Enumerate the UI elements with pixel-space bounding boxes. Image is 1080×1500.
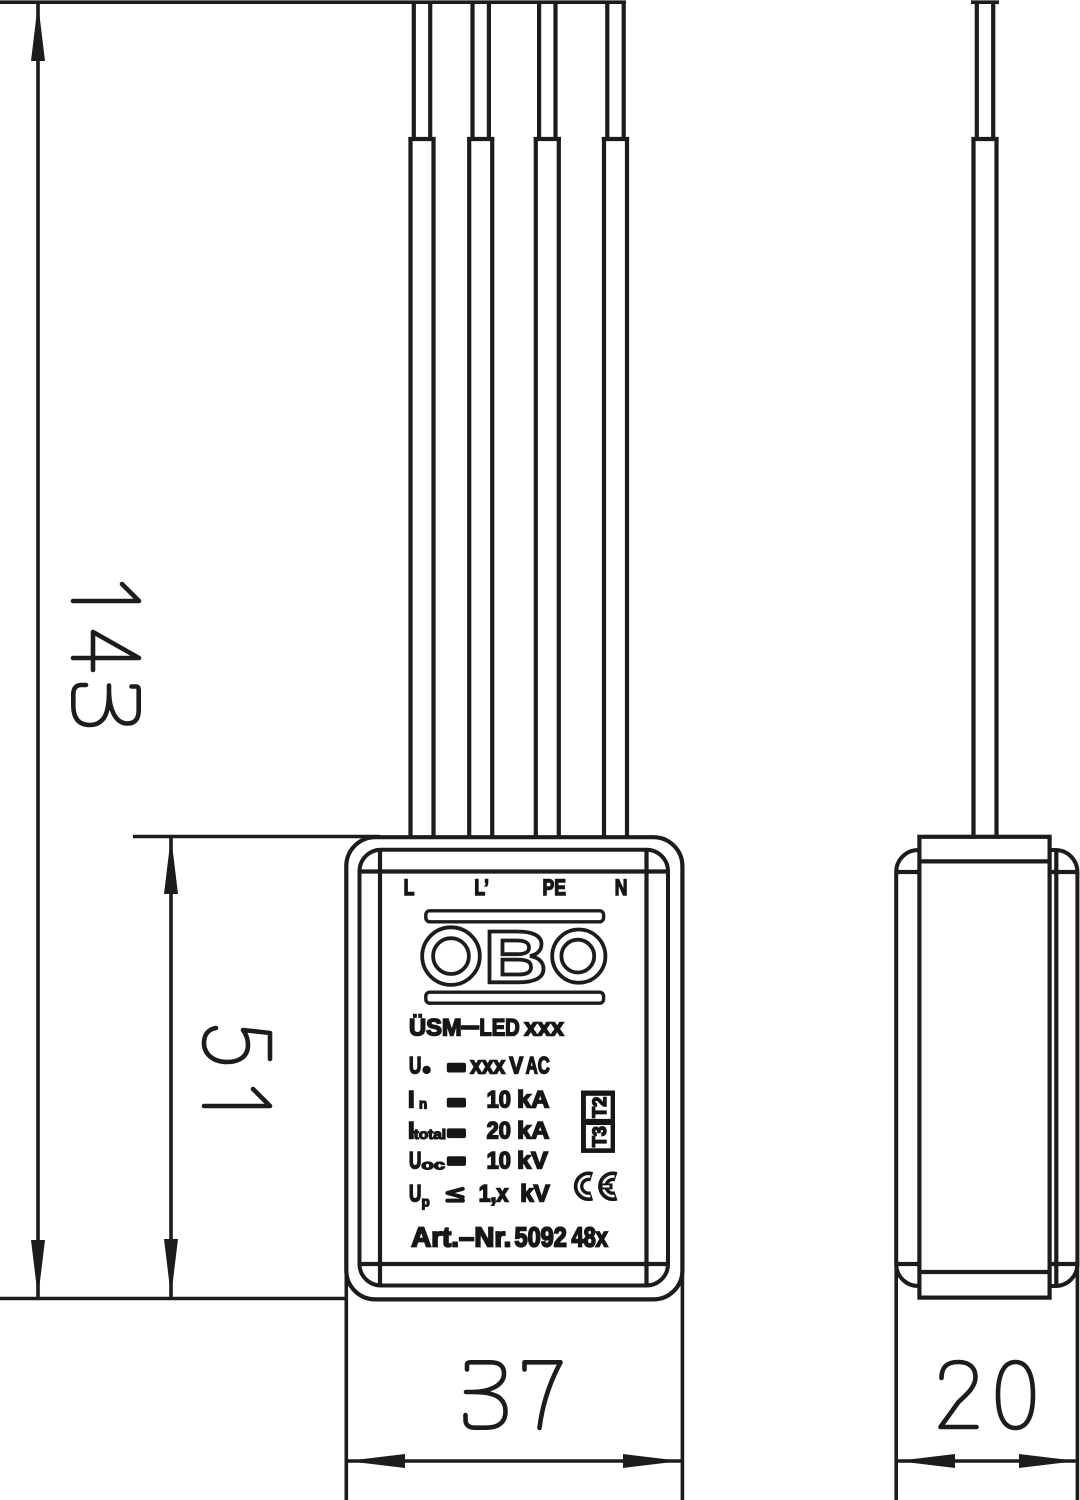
svg-text:xxx: xxx [524, 1016, 564, 1042]
svg-text:total: total [414, 1128, 446, 1143]
svg-text:L’: L’ [474, 876, 489, 901]
svg-text:N: N [615, 876, 628, 901]
svg-text:oc: oc [421, 1157, 445, 1173]
svg-text:p: p [422, 1195, 430, 1210]
svg-text:kA: kA [517, 1118, 549, 1144]
svg-text:V: V [509, 1052, 523, 1079]
svg-text:n: n [419, 1096, 427, 1111]
svg-text:Art.–Nr.: Art.–Nr. [411, 1221, 511, 1252]
svg-text:10: 10 [487, 1147, 511, 1174]
svg-text:xxx: xxx [470, 1052, 505, 1079]
svg-text:1,x: 1,x [479, 1180, 509, 1206]
svg-text:kV: kV [520, 1181, 550, 1208]
svg-text:20: 20 [487, 1117, 511, 1144]
svg-text:kA: kA [517, 1087, 549, 1113]
svg-text:kV: kV [517, 1148, 548, 1174]
svg-text:LED: LED [479, 1014, 519, 1041]
svg-text:AC: AC [526, 1053, 550, 1080]
svg-text:10: 10 [487, 1086, 511, 1113]
svg-text:U: U [409, 1148, 421, 1174]
svg-text:I: I [408, 1088, 415, 1114]
svg-text:L: L [404, 876, 415, 901]
svg-text:PE: PE [543, 876, 566, 901]
svg-text:48x: 48x [572, 1222, 608, 1253]
svg-text:T2: T2 [589, 1097, 611, 1118]
svg-text:U: U [409, 1181, 421, 1207]
svg-text:T3: T3 [589, 1126, 611, 1147]
svg-text:ÜSM: ÜSM [409, 1015, 462, 1042]
svg-text:5092: 5092 [515, 1223, 567, 1253]
svg-text:U: U [409, 1053, 421, 1079]
